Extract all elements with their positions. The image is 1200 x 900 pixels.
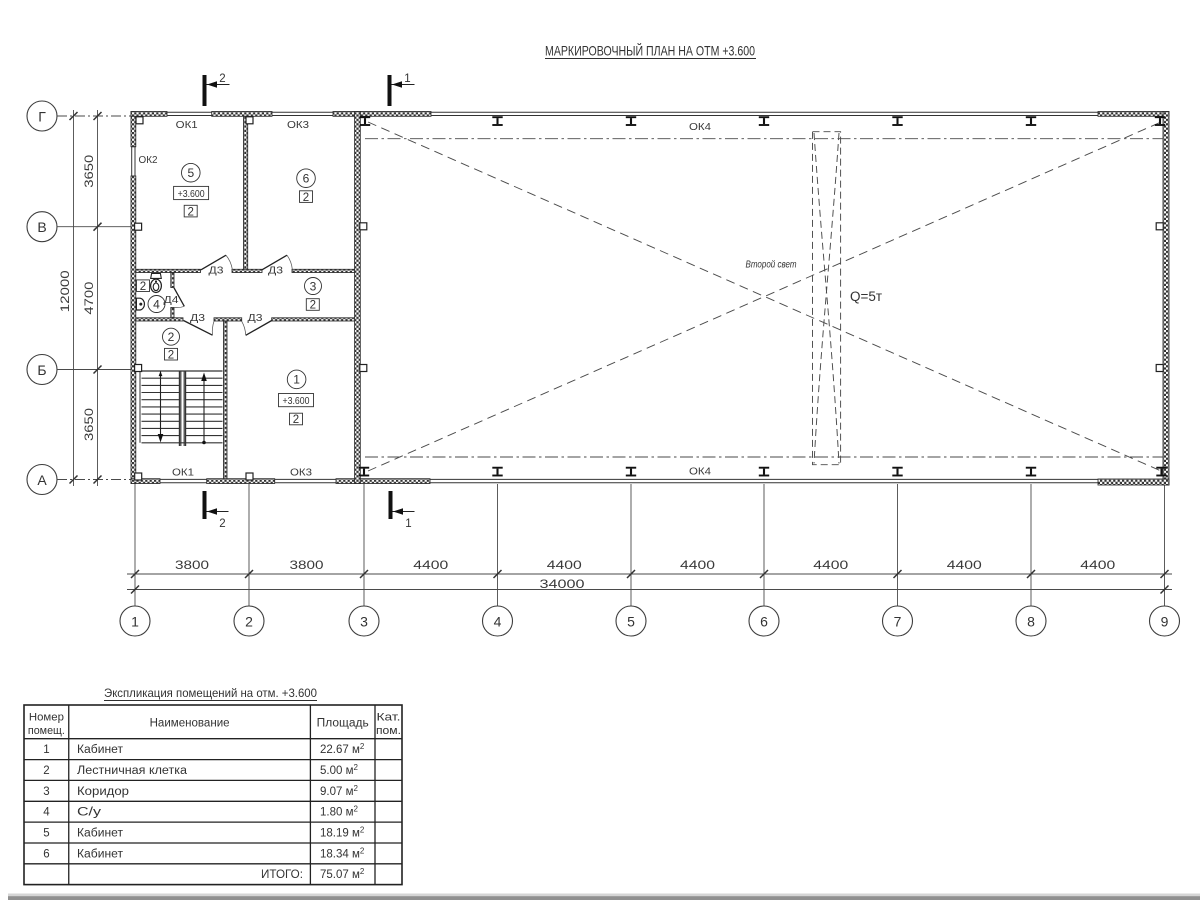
svg-text:2: 2: [43, 765, 49, 777]
svg-text:ОК4: ОК4: [689, 466, 711, 478]
svg-text:Второй свет: Второй свет: [746, 259, 797, 271]
svg-text:4: 4: [494, 614, 502, 630]
svg-text:4700: 4700: [82, 281, 96, 314]
svg-text:4400: 4400: [1080, 558, 1115, 572]
svg-text:2: 2: [219, 518, 225, 530]
svg-text:2: 2: [168, 349, 174, 361]
svg-text:Кабинет: Кабинет: [77, 744, 124, 756]
svg-text:Б: Б: [37, 362, 46, 378]
svg-text:18.19 м2: 18.19 м2: [320, 826, 365, 840]
svg-text:Д3: Д3: [268, 266, 284, 277]
svg-text:2: 2: [303, 192, 309, 204]
svg-text:5: 5: [627, 614, 635, 630]
svg-text:7: 7: [894, 614, 902, 630]
svg-text:2: 2: [310, 300, 316, 312]
svg-text:9.07 м2: 9.07 м2: [320, 784, 358, 798]
svg-text:ОК3: ОК3: [290, 467, 312, 479]
svg-text:пом.: пом.: [376, 725, 401, 737]
svg-text:6: 6: [303, 172, 310, 186]
svg-text:6: 6: [760, 614, 768, 630]
svg-text:Г: Г: [38, 109, 46, 125]
svg-text:ОК1: ОК1: [176, 119, 198, 131]
svg-text:1: 1: [43, 744, 49, 756]
svg-text:2: 2: [245, 614, 253, 630]
svg-text:Коридор: Коридор: [77, 786, 129, 798]
svg-text:22.67 м2: 22.67 м2: [320, 742, 365, 756]
svg-text:4400: 4400: [547, 558, 582, 572]
svg-text:1: 1: [131, 614, 139, 630]
svg-text:4400: 4400: [947, 558, 982, 572]
svg-text:+3.600: +3.600: [178, 188, 205, 200]
svg-text:9: 9: [1161, 614, 1169, 630]
svg-text:Кабинет: Кабинет: [77, 828, 124, 840]
svg-text:3: 3: [360, 614, 368, 630]
svg-text:34000: 34000: [540, 577, 585, 591]
svg-text:1.80 м2: 1.80 м2: [320, 805, 358, 819]
svg-text:12000: 12000: [58, 270, 72, 312]
svg-text:ОК3: ОК3: [287, 119, 309, 131]
svg-text:4400: 4400: [680, 558, 715, 572]
svg-text:Номер: Номер: [29, 712, 64, 724]
svg-text:С/у: С/у: [77, 807, 101, 819]
svg-text:5.00 м2: 5.00 м2: [320, 763, 358, 777]
svg-text:Д3: Д3: [209, 266, 225, 277]
svg-text:ИТОГО:: ИТОГО:: [261, 869, 303, 881]
svg-text:Кат.: Кат.: [377, 712, 401, 724]
svg-text:4400: 4400: [413, 558, 448, 572]
svg-text:Экспликация помещений на отм.: Экспликация помещений на отм. +3.600: [104, 686, 317, 700]
svg-text:75.07 м2: 75.07 м2: [320, 867, 365, 881]
svg-text:2: 2: [293, 414, 299, 426]
svg-text:ОК1: ОК1: [172, 467, 194, 479]
svg-text:В: В: [37, 219, 46, 235]
svg-text:МАРКИРОВОЧНЫЙ ПЛАН НА ОТМ +3.6: МАРКИРОВОЧНЫЙ ПЛАН НА ОТМ +3.600: [545, 42, 755, 59]
svg-text:1: 1: [405, 518, 411, 530]
svg-text:5: 5: [43, 828, 49, 840]
svg-text:Д3: Д3: [248, 313, 264, 324]
svg-text:6: 6: [43, 848, 49, 860]
svg-text:Лестничная клетка: Лестничная клетка: [77, 765, 188, 777]
svg-text:Кабинет: Кабинет: [77, 848, 124, 860]
svg-text:+3.600: +3.600: [283, 395, 310, 407]
svg-text:Наименование: Наименование: [150, 718, 230, 730]
svg-text:3: 3: [310, 279, 317, 293]
svg-text:3650: 3650: [82, 154, 96, 187]
svg-text:3800: 3800: [290, 558, 324, 572]
svg-text:помещ.: помещ.: [28, 725, 65, 737]
svg-text:2: 2: [168, 330, 175, 344]
svg-text:Д3: Д3: [190, 313, 206, 324]
svg-text:3800: 3800: [175, 558, 209, 572]
svg-text:1: 1: [404, 73, 410, 85]
svg-text:5: 5: [187, 166, 194, 180]
svg-text:4: 4: [43, 807, 50, 819]
svg-text:ОК2: ОК2: [139, 155, 158, 166]
svg-text:Д4: Д4: [164, 295, 180, 306]
svg-text:2: 2: [140, 281, 146, 293]
svg-text:2: 2: [219, 73, 225, 85]
svg-text:3650: 3650: [82, 408, 96, 441]
svg-text:Площадь: Площадь: [317, 718, 369, 730]
svg-text:18.34 м2: 18.34 м2: [320, 846, 365, 860]
svg-text:2: 2: [187, 206, 193, 218]
svg-text:1: 1: [293, 373, 300, 387]
svg-text:Q=5т: Q=5т: [850, 289, 882, 304]
svg-text:А: А: [37, 472, 47, 488]
svg-text:ОК4: ОК4: [689, 121, 711, 133]
svg-text:4400: 4400: [813, 558, 848, 572]
svg-text:3: 3: [43, 786, 49, 798]
svg-text:8: 8: [1027, 614, 1035, 630]
svg-text:4: 4: [153, 297, 160, 311]
